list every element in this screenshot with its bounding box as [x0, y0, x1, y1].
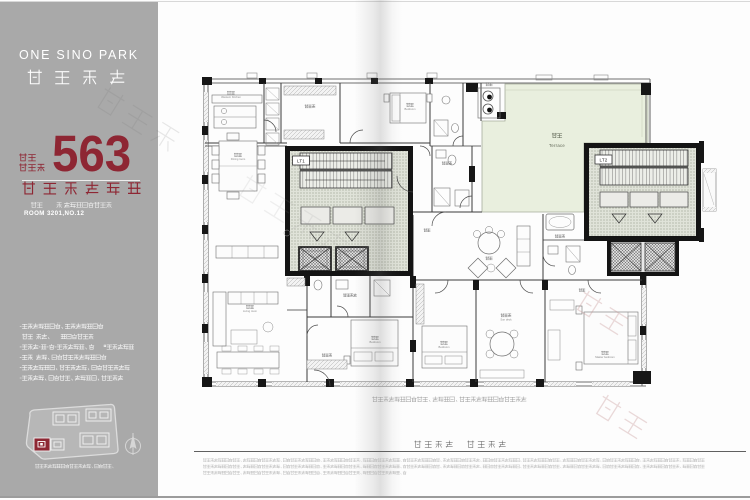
svg-text:Bedroom: Bedroom — [405, 107, 417, 111]
svg-text:Dining room: Dining room — [231, 157, 246, 161]
svg-text:Sun deck: Sun deck — [500, 317, 512, 321]
svg-text:LT2: LT2 — [599, 158, 607, 163]
svg-text:Western Kitchen: Western Kitchen — [221, 95, 241, 99]
svg-text:Master bedroom: Master bedroom — [595, 355, 615, 359]
svg-text:LT1: LT1 — [297, 159, 305, 164]
svg-text:Terrace: Terrace — [549, 143, 565, 148]
svg-text:Living room: Living room — [243, 309, 258, 313]
svg-text:Bedroom: Bedroom — [439, 345, 451, 349]
